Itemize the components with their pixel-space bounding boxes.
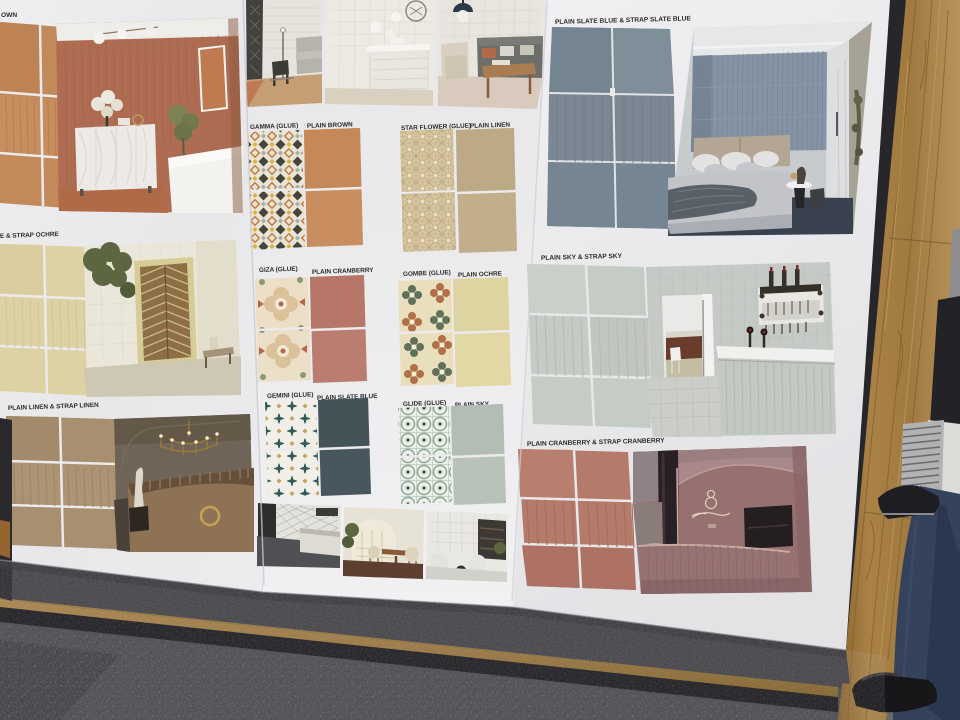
svg-text:OWN: OWN [1, 12, 17, 19]
svg-text:GIZA (GLUE): GIZA (GLUE) [259, 266, 298, 274]
